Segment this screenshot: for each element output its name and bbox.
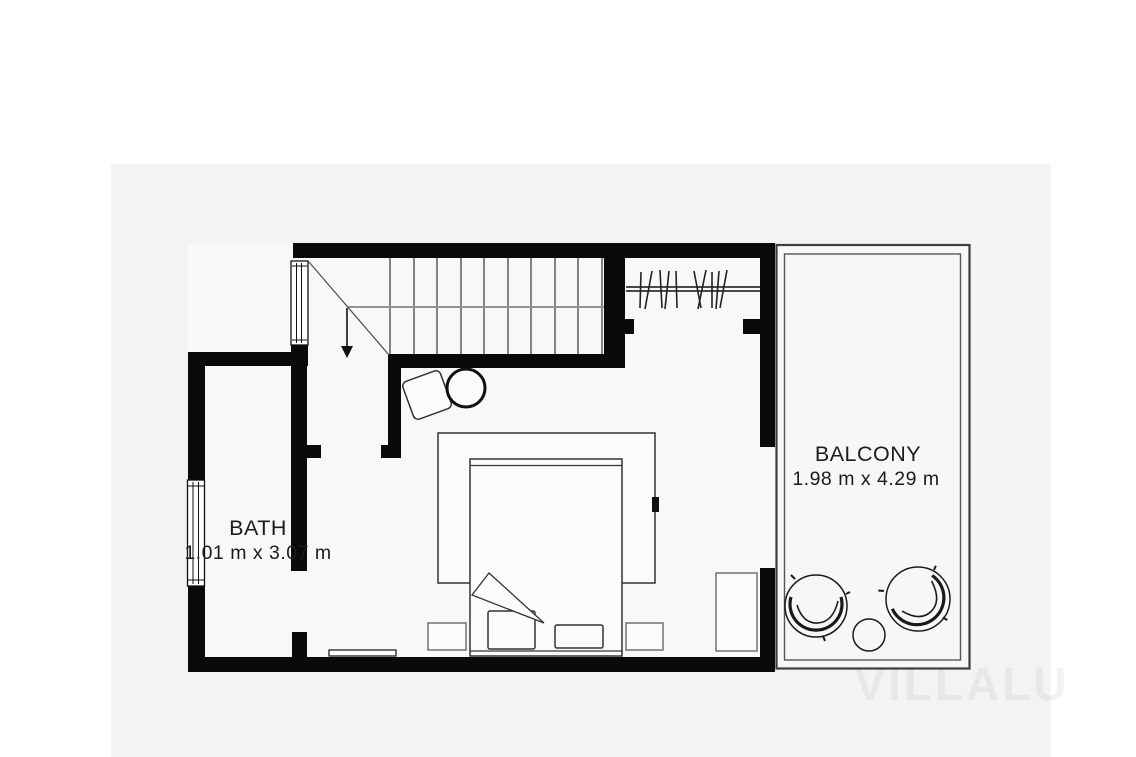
threshold-icon [329, 650, 396, 656]
dresser-icon [716, 573, 757, 651]
window-icon [291, 261, 308, 345]
round-table-icon [853, 619, 885, 651]
watermark: VILLALU [854, 658, 1069, 710]
bath-label: BATH [229, 516, 287, 540]
nightstand-icon [428, 623, 466, 650]
nightstand-icon [626, 623, 663, 650]
bed-handle-mark [652, 497, 659, 512]
pillow-icon [555, 625, 603, 648]
bath-dimensions: 1.01 m x 3.07 m [184, 542, 331, 564]
floor-plan: BATH 1.01 m x 3.07 m BALCONY 1.98 m x 4.… [0, 0, 1136, 757]
balcony-dimensions: 1.98 m x 4.29 m [792, 468, 939, 490]
window-icon [188, 480, 205, 586]
stool-icon [447, 369, 485, 407]
floor-plan-page: BATH 1.01 m x 3.07 m BALCONY 1.98 m x 4.… [0, 0, 1136, 757]
balcony-label: BALCONY [815, 442, 921, 466]
